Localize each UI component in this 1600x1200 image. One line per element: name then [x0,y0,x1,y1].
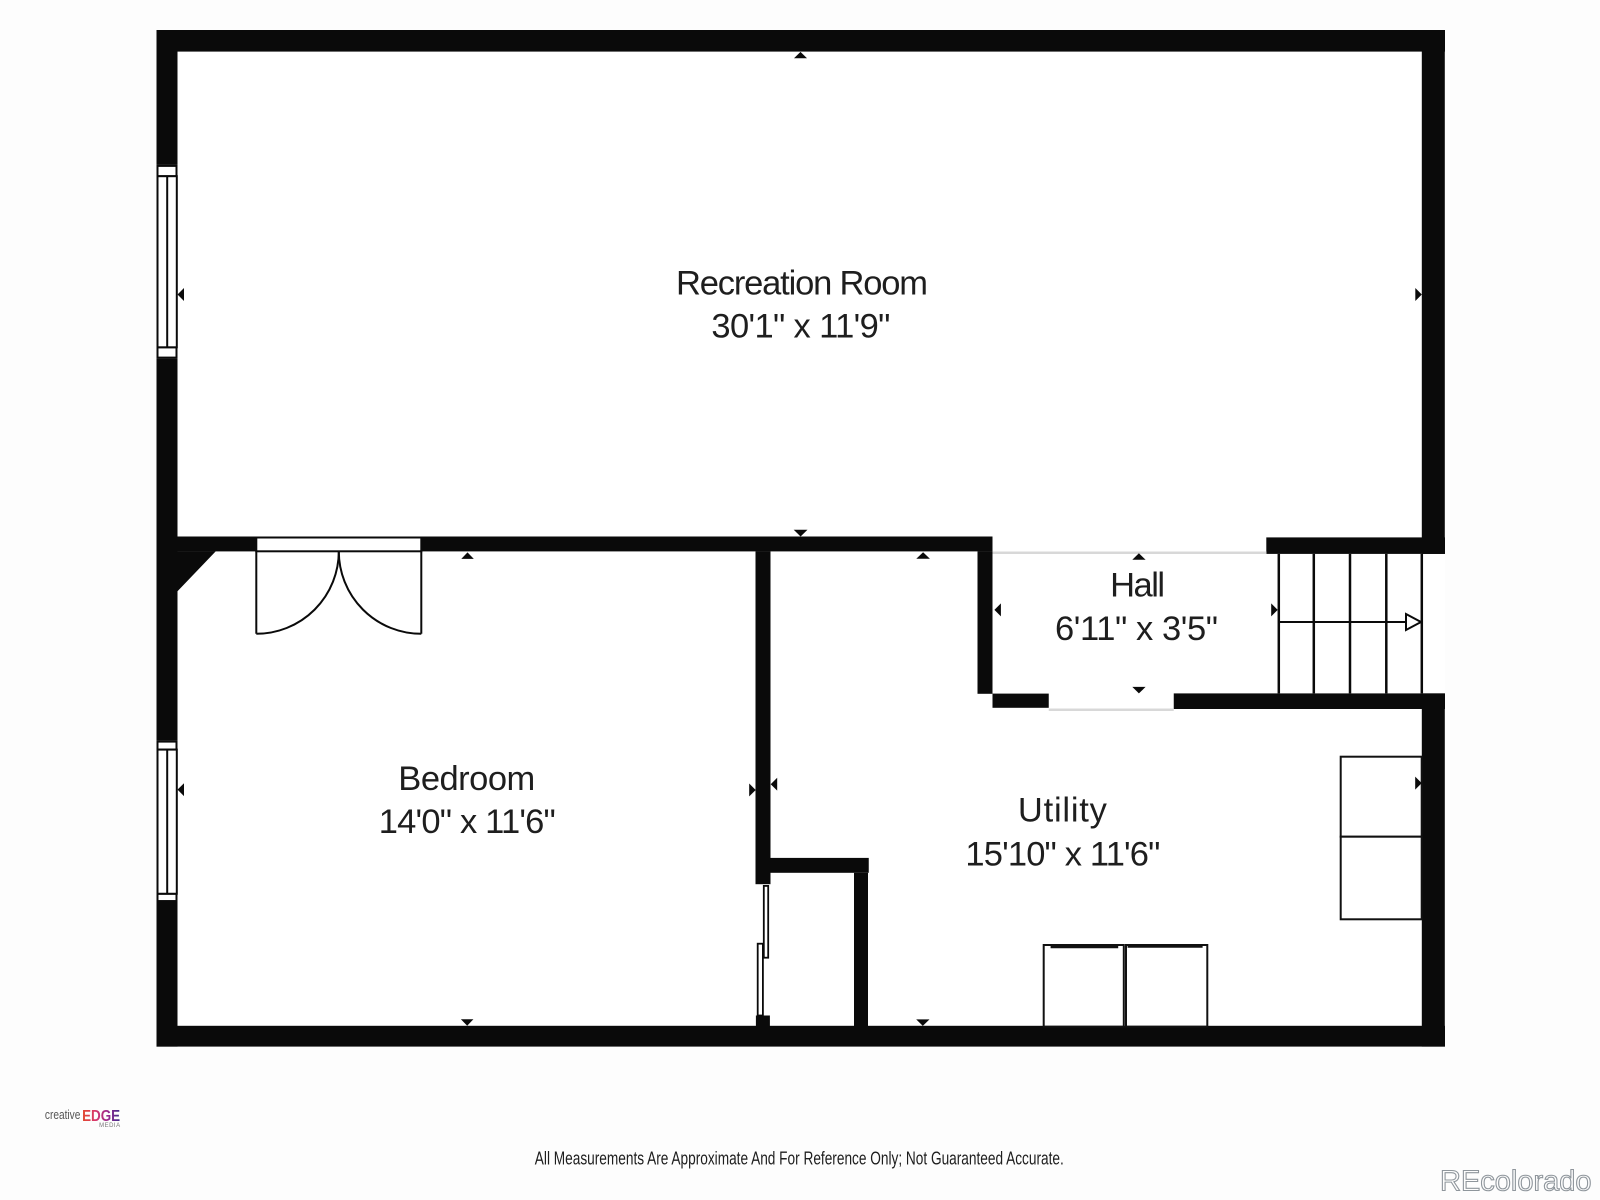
svg-text:creative: creative [45,1108,81,1122]
svg-text:All Measurements Are Approxima: All Measurements Are Approximate And For… [535,1149,1064,1169]
svg-text:Recreation Room: Recreation Room [676,265,928,303]
svg-text:15'10" x 11'6": 15'10" x 11'6" [965,835,1160,873]
svg-text:Hall: Hall [1110,567,1165,605]
svg-text:14'0" x 11'6": 14'0" x 11'6" [379,803,556,841]
svg-text:MEDIA: MEDIA [99,1123,120,1129]
svg-text:Bedroom: Bedroom [398,760,535,798]
svg-text:REcolorado: REcolorado [1440,1166,1592,1198]
svg-text:Utility: Utility [1018,792,1108,830]
svg-text:30'1" x 11'9": 30'1" x 11'9" [711,307,890,345]
svg-text:6'11" x 3'5": 6'11" x 3'5" [1055,610,1218,648]
